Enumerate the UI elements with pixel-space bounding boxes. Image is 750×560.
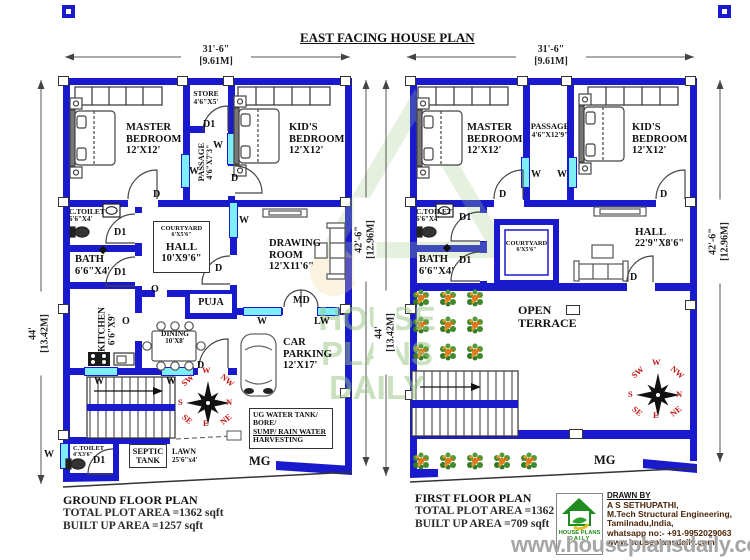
hall-courtyard-box: COURTYARD 6'X5'6" HALL 10'X9'6" xyxy=(153,221,210,273)
watermark-bottom-url: www.houseplansdaily.com xyxy=(511,533,750,557)
compass-label: E xyxy=(203,419,209,428)
door-marker: D xyxy=(215,264,222,274)
door-marker: D1 xyxy=(459,213,471,223)
dim-m: [9.61M] xyxy=(181,56,251,68)
label-line: TANK xyxy=(130,456,166,465)
label-line: BEDROOM xyxy=(467,134,522,146)
door-marker: MD xyxy=(293,296,310,306)
room-label-kitchen: KITCHEN 6'6"X9' xyxy=(98,301,119,357)
footer-ground: GROUND FLOOR PLAN TOTAL PLOT AREA =1362 … xyxy=(63,494,224,532)
room-label-master-bedroom-ff: MASTER BEDROOM 12'X12' xyxy=(467,122,522,157)
built-area-first: BUILT UP AREA =709 sqft xyxy=(415,518,576,531)
dim-ft: 31'-6" xyxy=(516,44,586,56)
label-line: ROOM xyxy=(269,250,321,262)
room-label-ctoilet-ff: C.TOILET 6'6"X4' xyxy=(416,208,452,224)
label-line: 6'6"X4' xyxy=(69,216,105,224)
label-line: C.TOILET xyxy=(73,445,104,452)
window-marker: W xyxy=(239,216,249,226)
label-line: 25'6"x4' xyxy=(172,457,197,465)
label-line: 4'6"X5' xyxy=(185,98,227,106)
car-icon xyxy=(241,334,276,396)
door-marker: D xyxy=(231,174,238,184)
window-marker: W xyxy=(531,170,541,180)
label-line: PARKING xyxy=(283,349,332,361)
opening-marker: O xyxy=(122,317,130,327)
room-label-puja: PUJA xyxy=(190,297,232,308)
room-label-courtyard-ff: COURTYARD 6'X5'6" xyxy=(500,240,553,254)
house-plan-sheet: EAST FACING HOUSE PLAN xyxy=(0,0,750,560)
label-line: HALL xyxy=(154,241,209,253)
dim-m: [12.96M] xyxy=(719,200,731,284)
label-line: BEDROOM xyxy=(632,134,687,146)
dim-ft: 42'-6" xyxy=(708,200,720,284)
label-line: 12'X12' xyxy=(126,145,181,157)
label-line: 6'6"X4' xyxy=(416,216,452,224)
room-label-drawing-room: DRAWING ROOM 12'X11'6" xyxy=(269,238,321,273)
room-label-store: STORE 4'6"X5' xyxy=(185,90,227,107)
room-label-kids-bedroom-ff: KID'S BEDROOM 12'X12' xyxy=(632,122,687,157)
door-marker: D xyxy=(499,190,506,200)
window-marker: W xyxy=(166,377,176,387)
label-line: BEDROOM xyxy=(289,134,344,146)
label-line: 12'X12' xyxy=(467,145,522,157)
plot-area-ground: TOTAL PLOT AREA =1362 sqft xyxy=(63,507,224,520)
label-line: 4'6"X7'3" xyxy=(206,127,215,197)
label-line: KID'S xyxy=(632,122,687,134)
label-line: 12'X17' xyxy=(283,360,332,372)
label-line: COURTYARD xyxy=(154,225,209,232)
opening-marker: O xyxy=(151,285,159,295)
room-label-bath-gf: BATH 6'6"X4' xyxy=(75,254,110,277)
room-label-ctoilet-gf: C.TOILET 6'6"X4' xyxy=(69,208,105,224)
dim-top-first: 31'-6" [9.61M] xyxy=(516,44,586,67)
label-line: DRAWING xyxy=(269,238,321,250)
window-marker: W xyxy=(94,377,104,387)
compass-label: W xyxy=(652,358,661,367)
room-label-car-parking: CAR PARKING 12'X17' xyxy=(283,337,332,372)
label-line: 6'6"X9' xyxy=(108,301,118,357)
room-label-bath-ff: BATH 6'6"X4' xyxy=(419,254,454,277)
label-line: KITCHEN xyxy=(98,301,108,357)
dim-ft: 42'-6" xyxy=(354,198,366,282)
dim-m: [13.42M] xyxy=(39,292,51,376)
label-mg-ground: MG xyxy=(249,455,271,469)
compass-label: N xyxy=(676,390,682,399)
room-label-master-bedroom-gf: MASTER BEDROOM 12'X12' xyxy=(126,122,181,157)
label-line: 4'6"X12'9" xyxy=(527,131,573,139)
door-marker: D1 xyxy=(203,120,215,130)
label-line: 6'6"X4' xyxy=(75,266,110,278)
tv-unit-icon xyxy=(263,207,646,217)
window-marker: W xyxy=(44,450,54,460)
label-line: HALL xyxy=(635,226,684,238)
room-label-kids-bedroom-gf: KID'S BEDROOM 12'X12' xyxy=(289,122,344,157)
dim-left-ground: 44' [13.42M] xyxy=(28,292,51,376)
dim-m: [9.61M] xyxy=(516,56,586,68)
label-line: TERRACE xyxy=(518,317,577,330)
label-line: BATH xyxy=(75,254,110,266)
room-label-passage-gf: PASSAGE 4'6"X7'3" xyxy=(197,127,215,197)
dim-ft: 31'-6" xyxy=(181,44,251,56)
watermark-line: DAILY xyxy=(272,371,482,406)
dim-left-first: 44' [13.42M] xyxy=(374,291,397,375)
dim-right-ground: 42'-6" [12.96M] xyxy=(354,198,377,282)
footer-first: FIRST FLOOR PLAN TOTAL PLOT AREA =1362 s… xyxy=(415,492,576,530)
label-mg-first: MG xyxy=(594,454,616,468)
label-line: 6'6"X4' xyxy=(419,266,454,278)
septic-tank-box: SEPTIC TANK xyxy=(129,444,167,468)
room-label-open-terrace: OPEN TERRACE xyxy=(518,304,577,330)
logo-house-icon xyxy=(558,496,601,530)
label-line: 12'X11'6" xyxy=(269,261,321,273)
dim-ft: 44' xyxy=(28,292,40,376)
label-line: 6'X5'6" xyxy=(154,232,209,239)
compass-label: S xyxy=(178,398,183,407)
label-line: BEDROOM xyxy=(126,134,181,146)
plan-title-ground: GROUND FLOOR PLAN xyxy=(63,494,224,507)
window-marker: W xyxy=(189,167,199,177)
label-line: 10'X9'6" xyxy=(154,253,209,265)
built-area-ground: BUILT UP AREA =1257 sqft xyxy=(63,520,224,533)
label-line: KID'S xyxy=(289,122,344,134)
dim-m: [13.42M] xyxy=(385,291,397,375)
door-marker: D xyxy=(153,190,160,200)
door-marker: D1 xyxy=(93,456,105,466)
door-marker: D xyxy=(660,190,667,200)
window-marker: W xyxy=(213,141,223,151)
label-line: BATH xyxy=(419,254,454,266)
door-marker: D xyxy=(630,273,637,283)
label-line: COURTYARD xyxy=(500,240,553,247)
label-line: HARVESTING xyxy=(253,436,332,444)
label-line: MASTER xyxy=(126,122,181,134)
compass-label: S xyxy=(628,390,633,399)
label-line: 12'X12' xyxy=(289,145,344,157)
puja-room: PUJA xyxy=(190,294,232,313)
label-line: CAR xyxy=(283,337,332,349)
label-line: 12'X12' xyxy=(632,145,687,157)
label-line: 6'X5'6" xyxy=(500,247,553,254)
room-label-hall-ff: HALL 22'9"X8'6" xyxy=(635,226,684,249)
compass-label: W xyxy=(202,366,211,375)
dim-ft: 44' xyxy=(374,291,386,375)
compass-label: N xyxy=(226,398,232,407)
label-line: MASTER xyxy=(467,122,522,134)
label-line: 22'9"X8'6" xyxy=(635,238,684,249)
window-marker: W xyxy=(257,317,267,327)
dim-right-first: 42'-6" [12.96M] xyxy=(708,200,731,284)
door-marker: D1 xyxy=(114,228,126,238)
room-label-passage-ff: PASSAGE 4'6"X12'9" xyxy=(527,122,573,140)
compass-label: E xyxy=(653,411,659,420)
door-marker: D1 xyxy=(114,268,126,278)
lawn-dashes xyxy=(176,431,241,440)
room-label-dining: DINING 10'X8' xyxy=(154,330,196,346)
dim-m: [12.96M] xyxy=(365,198,377,282)
plot-area-first: TOTAL PLOT AREA =1362 sqft xyxy=(415,505,576,518)
window-marker: W xyxy=(557,170,567,180)
dim-top-ground: 31'-6" [9.61M] xyxy=(181,44,251,67)
door-marker: D1 xyxy=(459,256,471,266)
ug-water-tank-box: UG WATER TANK/ BORE/ SUMP/ RAIN WATER HA… xyxy=(249,408,333,449)
window-marker: LW xyxy=(314,317,330,327)
label-line: 10'X8' xyxy=(154,338,196,346)
plan-title-first: FIRST FLOOR PLAN xyxy=(415,492,576,505)
room-label-lawn: LAWN 25'6"x4' xyxy=(172,448,197,464)
